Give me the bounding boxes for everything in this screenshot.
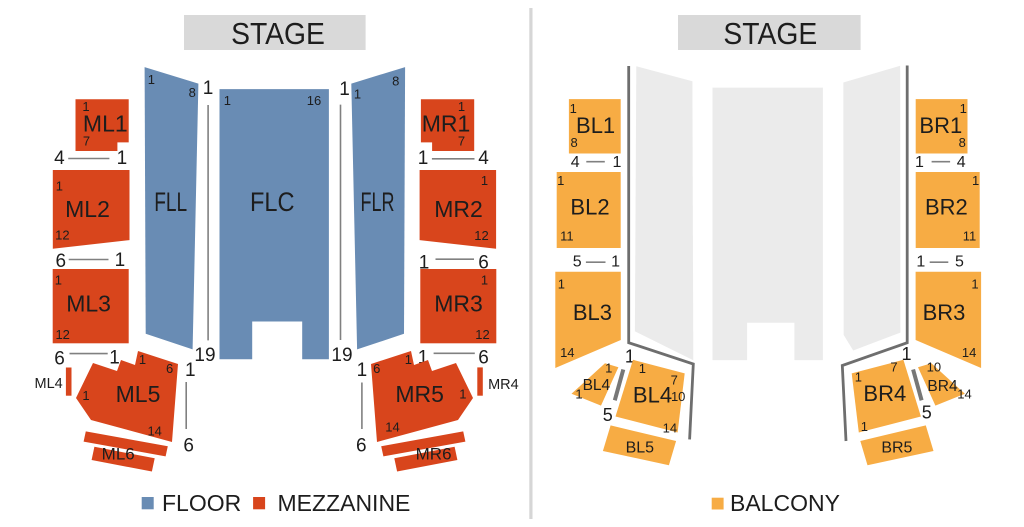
svg-text:12: 12 <box>55 228 69 243</box>
svg-text:BL4: BL4 <box>633 382 672 407</box>
svg-text:12: 12 <box>55 327 69 342</box>
svg-text:1: 1 <box>139 352 146 367</box>
svg-text:1: 1 <box>861 419 868 434</box>
svg-text:1: 1 <box>418 148 429 169</box>
svg-text:12: 12 <box>474 228 488 243</box>
svg-text:1: 1 <box>82 388 89 403</box>
svg-text:1: 1 <box>148 72 155 87</box>
svg-text:1: 1 <box>558 276 565 291</box>
svg-text:1: 1 <box>224 93 231 108</box>
svg-text:1: 1 <box>557 173 564 188</box>
svg-text:1: 1 <box>459 386 466 401</box>
svg-text:BL5: BL5 <box>626 439 655 456</box>
svg-text:MR1: MR1 <box>422 111 471 137</box>
svg-text:12: 12 <box>475 327 489 342</box>
svg-text:BL2: BL2 <box>570 195 609 220</box>
svg-text:5: 5 <box>603 405 613 425</box>
svg-text:MR3: MR3 <box>434 291 483 317</box>
svg-text:19: 19 <box>331 345 352 366</box>
svg-text:1: 1 <box>915 154 924 171</box>
svg-text:1: 1 <box>481 273 488 288</box>
svg-text:MR4: MR4 <box>488 377 519 393</box>
svg-text:ML5: ML5 <box>116 381 161 407</box>
svg-text:6: 6 <box>356 436 367 457</box>
svg-text:1: 1 <box>570 101 577 116</box>
svg-text:1: 1 <box>117 148 128 169</box>
svg-text:10: 10 <box>671 389 685 404</box>
svg-text:BR2: BR2 <box>925 195 968 220</box>
svg-text:7: 7 <box>83 134 90 149</box>
svg-text:6: 6 <box>166 361 173 376</box>
svg-text:1: 1 <box>611 254 620 271</box>
svg-text:BR3: BR3 <box>923 300 966 325</box>
svg-text:8: 8 <box>189 85 196 100</box>
svg-text:14: 14 <box>147 423 161 438</box>
svg-text:1: 1 <box>481 173 488 188</box>
svg-text:1: 1 <box>405 352 412 367</box>
svg-text:1: 1 <box>109 348 120 369</box>
svg-text:1: 1 <box>605 360 612 375</box>
svg-text:1: 1 <box>612 154 621 171</box>
svg-text:5: 5 <box>922 402 932 422</box>
svg-text:19: 19 <box>194 345 215 366</box>
svg-text:6: 6 <box>54 349 65 370</box>
svg-text:11: 11 <box>963 229 977 244</box>
svg-text:FLL: FLL <box>154 187 187 217</box>
svg-text:5: 5 <box>573 254 582 271</box>
svg-text:7: 7 <box>671 373 678 388</box>
svg-text:1: 1 <box>56 179 63 194</box>
svg-text:16: 16 <box>307 93 321 108</box>
svg-text:BL1: BL1 <box>576 113 615 138</box>
svg-text:ML2: ML2 <box>65 196 110 222</box>
svg-text:1: 1 <box>357 360 368 381</box>
svg-text:1: 1 <box>339 79 350 100</box>
svg-text:1: 1 <box>458 99 465 114</box>
svg-text:FLC: FLC <box>250 187 295 217</box>
svg-text:6: 6 <box>183 436 194 457</box>
svg-text:1: 1 <box>971 276 978 291</box>
svg-text:8: 8 <box>570 135 577 150</box>
svg-text:4: 4 <box>957 154 966 171</box>
svg-text:STAGE: STAGE <box>231 16 325 51</box>
svg-text:1: 1 <box>185 360 196 381</box>
svg-text:1: 1 <box>916 254 925 271</box>
svg-text:11: 11 <box>560 229 574 244</box>
svg-text:4: 4 <box>54 148 65 169</box>
svg-text:MR5: MR5 <box>395 381 444 407</box>
svg-text:STAGE: STAGE <box>723 16 817 51</box>
svg-text:5: 5 <box>955 254 964 271</box>
svg-text:FLR: FLR <box>361 187 395 217</box>
svg-text:BL4: BL4 <box>583 377 611 394</box>
svg-text:BR4: BR4 <box>863 381 906 406</box>
svg-text:BR1: BR1 <box>919 113 962 138</box>
svg-text:MEZZANINE: MEZZANINE <box>278 490 411 516</box>
svg-text:1: 1 <box>354 87 361 102</box>
svg-text:14: 14 <box>560 345 574 360</box>
svg-text:14: 14 <box>957 386 971 401</box>
svg-text:14: 14 <box>962 345 976 360</box>
svg-text:4: 4 <box>478 148 489 169</box>
svg-text:6: 6 <box>56 251 67 272</box>
svg-text:ML6: ML6 <box>102 444 135 463</box>
svg-text:1: 1 <box>960 101 967 116</box>
svg-text:BR4: BR4 <box>927 378 958 395</box>
svg-text:4: 4 <box>571 154 580 171</box>
svg-text:8: 8 <box>959 135 966 150</box>
svg-text:6: 6 <box>478 348 489 369</box>
svg-text:8: 8 <box>392 73 399 88</box>
svg-text:BALCONY: BALCONY <box>730 490 840 516</box>
svg-text:ML4: ML4 <box>34 376 62 392</box>
svg-text:1: 1 <box>82 99 89 114</box>
svg-text:1: 1 <box>55 273 62 288</box>
svg-text:MR6: MR6 <box>416 445 452 464</box>
svg-text:14: 14 <box>663 421 677 436</box>
svg-text:BL3: BL3 <box>573 300 612 325</box>
svg-text:1: 1 <box>203 78 214 99</box>
svg-text:6: 6 <box>373 361 380 376</box>
svg-text:7: 7 <box>458 134 465 149</box>
svg-text:7: 7 <box>890 359 897 374</box>
svg-text:1: 1 <box>115 250 126 271</box>
svg-text:ML1: ML1 <box>83 111 128 137</box>
svg-text:ML3: ML3 <box>66 291 111 317</box>
svg-text:MR2: MR2 <box>434 196 483 222</box>
svg-text:1: 1 <box>855 369 862 384</box>
svg-text:14: 14 <box>385 420 399 435</box>
svg-text:1: 1 <box>575 387 582 402</box>
svg-text:FLOOR: FLOOR <box>162 490 241 516</box>
svg-text:10: 10 <box>927 359 941 374</box>
svg-text:BR5: BR5 <box>881 439 912 456</box>
svg-text:1: 1 <box>972 173 979 188</box>
svg-text:1: 1 <box>639 361 646 376</box>
